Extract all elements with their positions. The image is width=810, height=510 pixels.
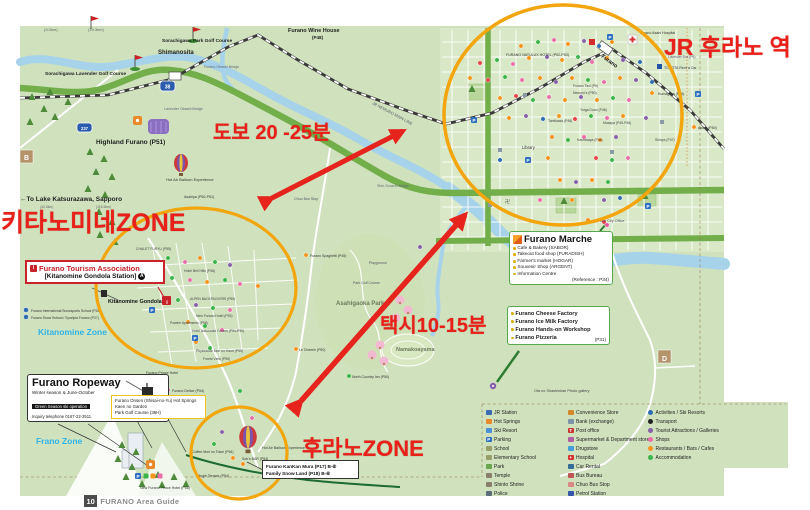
legend-icon — [486, 464, 492, 470]
map-label-natulux-hotel: FURANO NATULUX HOTEL (P52-P53) — [506, 53, 569, 57]
legend-icon — [486, 473, 492, 479]
poi-dot — [468, 76, 472, 80]
map-label-library: Library — [522, 145, 536, 150]
info-icon: i — [30, 265, 37, 272]
poi-dot — [602, 198, 606, 202]
bullet-icon — [513, 273, 516, 276]
poi-dot — [188, 278, 192, 282]
legend-dot-icon — [648, 437, 653, 442]
poi-dot — [634, 78, 638, 82]
map-label-forest-view: Forest View (P55) — [203, 357, 230, 361]
legend-item: Police — [486, 489, 536, 498]
poi-dot — [547, 95, 551, 99]
legend-item: Shinto Shrine — [486, 480, 536, 489]
building-icon — [498, 148, 502, 152]
onsen-line: Furano Onsen (Shisai-no-Yu) Hot Springs — [115, 398, 202, 404]
legend-icon — [568, 464, 574, 470]
legend-item: Drugstore — [568, 444, 649, 453]
rentacar-icon — [657, 64, 662, 69]
factory-item: Furano Hands-on Workshop — [511, 326, 606, 334]
bullet-icon — [511, 337, 514, 340]
legend-icon — [486, 491, 492, 497]
map-label-golf-course-2: Sorachigawa Park Golf Course — [162, 38, 232, 44]
map-label-bridge-lavender-obashi: Lavender Obashi Bridge — [164, 107, 203, 111]
poi-dot — [503, 75, 507, 79]
poi-dot — [594, 156, 598, 160]
poi-dot — [170, 276, 174, 280]
bullet-icon — [511, 328, 514, 331]
map-label-bridge-furano-obashi: Furano Obashi Bridge — [204, 65, 239, 69]
poi-dot — [650, 91, 654, 95]
map-label-hotel-bell-hills: Hotel Bell Hills (P56) — [184, 269, 215, 273]
poi-dot — [520, 78, 524, 82]
legend-icon — [486, 428, 492, 434]
poi-dot — [511, 62, 515, 66]
bullet-icon — [511, 312, 514, 315]
legend-item: PParking — [486, 435, 536, 444]
legend-item: Temple — [486, 471, 536, 480]
bullet-icon — [513, 266, 516, 269]
numbered-circle-icon — [24, 315, 29, 320]
map-label-asahiya: Asahiya (P50-P51) — [184, 195, 214, 199]
annotation-taxi-time: 택시10-15분 — [380, 316, 486, 336]
annotation-jr-station: JR 후라노 역 — [664, 36, 791, 59]
poi-dot — [228, 263, 232, 267]
map-label-shinya: Shinya (P47) — [655, 138, 675, 142]
legend-item: School — [486, 444, 536, 453]
poi-dot — [538, 198, 542, 202]
annotation-furano-zone: 후라노ZONE — [302, 438, 424, 460]
map-label-kitanomine-zone-label: Kitanomine Zone — [38, 327, 107, 337]
badge-number: 10 — [84, 495, 97, 507]
parking-letter: P — [526, 158, 529, 163]
legend-item: Activities / Ski Resorts — [648, 408, 719, 417]
poi-dot — [418, 245, 422, 249]
parking-letter: P — [646, 204, 649, 209]
map-label-highland-furano: Highland Furano (P51) — [96, 139, 165, 146]
legend-item: TPost office — [568, 426, 649, 435]
map-label-chalet-furyu: CHALET FURYU (P55) — [136, 247, 171, 251]
poi-dot — [566, 138, 570, 142]
poi-dot — [627, 98, 631, 102]
poi-dot — [611, 96, 615, 100]
poi-dot — [486, 78, 490, 82]
legend-item: Car Rental — [568, 462, 649, 471]
poi-dot — [610, 158, 614, 162]
onsen-box: Furano Onsen (Shisai-no-Yu) Hot SpringsK… — [111, 395, 206, 419]
poi-dot — [602, 80, 606, 84]
legend-column-1: JR StationHot SpringsSki ResortPParkingS… — [486, 408, 536, 498]
shimanosita-station-marker — [169, 72, 181, 80]
legend-item: Convenience Store — [568, 408, 649, 417]
poi-dot — [590, 60, 594, 64]
map-label-kitanomine-gondola: Kitanomine Gondola — [108, 299, 163, 305]
bullet-icon — [513, 260, 516, 263]
map-label-phytoncide: Phytoncide Mori no Kaori (P55) — [196, 349, 243, 353]
poi-dot — [573, 117, 577, 121]
map-label-shimanosita-station: Shimanosita — [158, 50, 194, 56]
legend-item: Shops — [648, 435, 719, 444]
poi-dot — [241, 462, 245, 466]
marche-reference: (Reference : P34) — [513, 277, 609, 282]
map-label-north-country-inn: North Country Inn (P50) — [352, 375, 389, 379]
legend-icon — [568, 446, 574, 452]
map-label-furano-taxi: Furano Taxi (P6) — [573, 84, 598, 88]
map-label-snow-school: Furano Snow School / Sportpia Furano (P2… — [31, 316, 99, 320]
legend-dot-icon — [648, 446, 653, 451]
map-label-nemuros: Nemuro's (P50) — [573, 91, 597, 95]
map-label-temple-mark: 卍 — [505, 199, 510, 205]
poi-dot — [610, 40, 614, 44]
poi-dot — [582, 39, 586, 43]
poi-dot — [560, 58, 564, 62]
poi-dot — [558, 178, 562, 182]
ropeway-bar: Green Season ski operation — [32, 404, 90, 409]
numbered-circle-icon — [24, 308, 29, 313]
poi-dot — [238, 282, 242, 286]
map-label-yuiga-doon: Yuiga Doon (P46) — [580, 108, 607, 112]
annotation-kitanomine-zone: 키타노미네ZONE — [1, 211, 185, 236]
poi-dot — [579, 95, 583, 99]
map-label-new-furano-hotel: New Furano Hotel (P53) — [196, 314, 233, 318]
poi-dot — [538, 76, 542, 80]
poi-dot — [605, 116, 609, 120]
page-badge: 10 FURANO Area Guide — [84, 495, 179, 507]
legend-icon — [568, 437, 574, 443]
map-label-playground: Playground — [369, 261, 387, 265]
map-label-distance-1: (3.0km) — [44, 27, 58, 32]
legend-item: Bus Bureau — [568, 471, 649, 480]
bullet-icon — [513, 247, 516, 250]
map-label-le-chemin: Le Chemin (P50) — [299, 348, 325, 352]
factory-item: Furano Pizzeria — [511, 334, 606, 342]
poi-dot — [536, 40, 540, 44]
legend-item: +Hospital — [568, 453, 649, 462]
furano-marche-box: Furano Marche Cafe & Bakery (SABOR)Takeo… — [509, 231, 613, 285]
poi-dot — [621, 58, 625, 62]
poi-dot — [183, 260, 187, 264]
poi-dot — [650, 80, 654, 84]
furano-area-guide-map: PPPPPPPP (3.0km)(19.3km)Sorachigawa Lave… — [0, 0, 810, 510]
map-label-route-237: 237 — [81, 126, 89, 131]
parking-letter: P — [696, 92, 699, 97]
poi-dot — [692, 125, 696, 129]
map-label-frano-zone-label: Frano Zone — [36, 436, 83, 446]
factory-item: Furano Cheese Factory — [511, 310, 606, 318]
marche-flag-icon — [513, 235, 522, 244]
building-icon — [523, 93, 527, 97]
service-icon — [144, 474, 149, 479]
poi-dot — [570, 76, 574, 80]
legend-item: Petrol Station — [568, 489, 649, 498]
legend-item: Tourist Attractions / Galleries — [648, 426, 719, 435]
map-label-grid-cell-b: B — [24, 155, 29, 162]
poi-dot — [198, 256, 202, 260]
factory-reference: (P31) — [595, 337, 606, 342]
kankan-line: Furano KanKan Mura (P17) B-⑥ — [266, 463, 355, 470]
marche-title: Furano Marche — [524, 234, 592, 245]
map-label-balloon-experience-2: Hot Air Balloon Experience — [262, 446, 305, 450]
poi-dot — [590, 178, 594, 182]
legend-dot-icon — [648, 428, 653, 433]
map-label-park-golf-course: Park Golf Course — [353, 281, 380, 285]
poi-dot — [541, 117, 545, 121]
poi-dot — [644, 116, 648, 120]
legend-icon: + — [568, 455, 574, 461]
poi-dot — [256, 284, 260, 288]
map-label-balloon-experience-1: Hot Air Balloon Experience — [166, 177, 214, 182]
parking-letter: P — [193, 336, 196, 341]
legend-item: Park — [486, 462, 536, 471]
poi-dot — [589, 114, 593, 118]
poi-dot — [621, 114, 625, 118]
map-label-grid-cell-d: D — [662, 356, 667, 363]
poi-dot — [507, 116, 511, 120]
poi-dot — [223, 278, 227, 282]
parking-letter: P — [472, 118, 475, 123]
poi-dot — [294, 347, 298, 351]
poi-dot — [228, 308, 232, 312]
circle-a-icon: A — [138, 273, 145, 280]
legend-icon: P — [486, 437, 492, 443]
poi-dot — [605, 223, 609, 227]
legend-item: JR Station — [486, 408, 536, 417]
legend-item: Bank (exchange) — [568, 417, 649, 426]
legend-icon — [486, 455, 492, 461]
poi-dot — [574, 180, 578, 184]
map-label-distance-2: (19.3km) — [88, 27, 104, 32]
legend-item: Hot Springs — [486, 417, 536, 426]
factory-item: Furano Ice Milk Factory — [511, 318, 606, 326]
cheese-factory-box: Furano Cheese FactoryFurano Ice Milk Fac… — [507, 306, 610, 345]
poi-dot — [550, 135, 554, 139]
poi-dot — [554, 80, 558, 84]
poi-dot — [563, 98, 567, 102]
poi-dot — [250, 416, 254, 420]
map-label-akiba: Akiba (P50) — [698, 126, 717, 130]
map-label-photo-gallery: Ota no Shashinkan Photo gallery — [534, 389, 590, 393]
legend-item: Ski Resort — [486, 426, 536, 435]
legend-icon — [568, 419, 574, 425]
map-label-snowsports-school: Furano International Snowsports School (… — [31, 309, 101, 313]
legend-icon: T — [568, 428, 574, 434]
poi-dot — [586, 78, 590, 82]
poi-dot — [524, 114, 528, 118]
legend-dot-icon — [648, 419, 653, 424]
legend-item: Supermarket & Department store — [568, 435, 649, 444]
legend-icon — [568, 482, 574, 488]
legend-dot-icon — [648, 455, 653, 460]
legend-item: Accommodation — [648, 453, 719, 462]
map-label-furano-spaghetti: Furano Spaghetti (P45) — [310, 254, 346, 258]
map-label-route-38: 38 — [165, 85, 171, 91]
badge-label: FURANO Area Guide — [100, 497, 179, 506]
legend-dot-icon — [648, 410, 653, 415]
poi-dot — [212, 442, 216, 446]
poi-dot — [595, 98, 599, 102]
legend-icon — [486, 419, 492, 425]
poi-dot — [618, 76, 622, 80]
poi-dot — [347, 374, 351, 378]
map-label-powder-apartments: Powder Apartments (P56) — [170, 321, 208, 325]
service-icon — [151, 474, 156, 479]
poi-dot — [570, 198, 574, 202]
map-label-coffee-mori-no-tokei: Coffee Mori no Tokei (P54) — [192, 450, 234, 454]
poi-dot — [546, 156, 550, 160]
map-label-furano-delice: Furano Delice (P54) — [172, 389, 204, 393]
poi-dot — [495, 58, 499, 62]
service-icon — [158, 474, 163, 479]
legend-icon — [486, 410, 492, 416]
poi-dot — [576, 55, 580, 59]
poi-dot — [231, 456, 235, 460]
legend-item: Transport — [648, 417, 719, 426]
building-icon — [610, 150, 614, 154]
map-label-tamikawa: Tamikawa (P46) — [548, 119, 572, 123]
poi-dot — [614, 135, 618, 139]
map-label-golf-course-1: Sorachigawa Lavender Golf Course — [45, 71, 126, 77]
map-base-legend-ext — [724, 402, 788, 468]
poi-dot — [498, 158, 502, 162]
station-poi-icon — [589, 39, 595, 45]
poi-dot — [557, 114, 561, 118]
map-label-wine-house: Furano Wine House — [288, 28, 340, 34]
kankan-line: Family Snow Land (P18) B-⑥ — [266, 470, 355, 477]
building-icon — [660, 120, 664, 124]
poi-dot — [498, 96, 502, 100]
map-label-bridge-shin-sorachi: Shin-Sorachi Bridge — [377, 184, 409, 188]
map-label-alpen-backpackers: ALPEN BACKPACKERS (P55) — [190, 297, 235, 301]
map-label-new-prince-hotel: New Furano Prince Hotel (P56) — [140, 486, 190, 490]
poi-dot — [166, 256, 170, 260]
poi-dot — [211, 306, 215, 310]
legend-icon — [486, 482, 492, 488]
legend-icon — [568, 410, 574, 416]
legend-icon — [568, 491, 574, 497]
poi-dot — [478, 61, 482, 65]
poi-dot — [552, 38, 556, 42]
tourism-subtitle: [Kitanomine Gondola Station] — [45, 273, 137, 280]
kankan-mura-box: Furano KanKan Mura (P17) B-⑥Family Snow … — [262, 460, 359, 479]
poi-dot — [205, 280, 209, 284]
parking-letter: P — [136, 474, 139, 479]
poi-dot — [304, 253, 308, 257]
map-label-masaya: Masaya (P45-P46) — [603, 121, 631, 125]
map-label-namakoayama: Namakoayama — [396, 347, 435, 353]
parking-letter: P — [150, 308, 153, 313]
legend-icon — [568, 473, 574, 479]
poi-dot — [213, 260, 217, 264]
parking-letter: P — [608, 35, 611, 40]
legend-item: Chuo Bus Stop — [568, 480, 649, 489]
legend-item: Elementary School — [486, 453, 536, 462]
poi-dot — [519, 44, 523, 48]
bullet-icon — [513, 253, 516, 256]
map-label-asahigaoka-park: Asahigaoka Park — [336, 301, 385, 307]
legend-column-3: Activities / Ski ResortsTransportTourist… — [648, 408, 719, 462]
legend-item: Restaurants / Bars / Cafes — [648, 444, 719, 453]
map-label-chuo-bus-stop: Chuo Bus Stop — [294, 197, 318, 201]
poi-dot — [606, 180, 610, 184]
map-label-kashiwaya: Kashiwaya (P46) — [577, 138, 603, 142]
annotation-walk-time: 도보 20 -25분 — [213, 123, 330, 143]
poi-dot — [566, 42, 570, 46]
poi-dot — [514, 94, 518, 98]
poi-dot — [176, 298, 180, 302]
poi-dot — [194, 303, 198, 307]
bullet-icon — [511, 320, 514, 323]
map-label-ningle-terrace: Ningle Terrace (P54) — [197, 474, 229, 478]
poi-dot — [238, 389, 242, 393]
poi-dot — [638, 60, 642, 64]
tourism-association-box: i Furano Tourism Association [Kitanomine… — [25, 260, 165, 284]
legend-icon — [486, 446, 492, 452]
poi-dot — [220, 430, 224, 434]
map-label-to-katsurazawa: ←To Lake Katsurazawa, Sapporo — [20, 196, 122, 203]
poi-dot — [597, 44, 601, 48]
poi-dot — [618, 196, 622, 200]
poi-dot — [626, 156, 630, 160]
poi-dot — [531, 98, 535, 102]
legend-column-2: Convenience StoreBank (exchange)TPost of… — [568, 408, 649, 498]
map-label-hotel-naturwald: Hotel Naturwald Furano (P54-P55) — [192, 329, 244, 333]
tourism-title: Furano Tourism Association — [39, 264, 140, 273]
onsen-line: Park Golf Course (36H) — [115, 410, 202, 416]
map-label-wine-house-page: (P48) — [312, 35, 324, 40]
